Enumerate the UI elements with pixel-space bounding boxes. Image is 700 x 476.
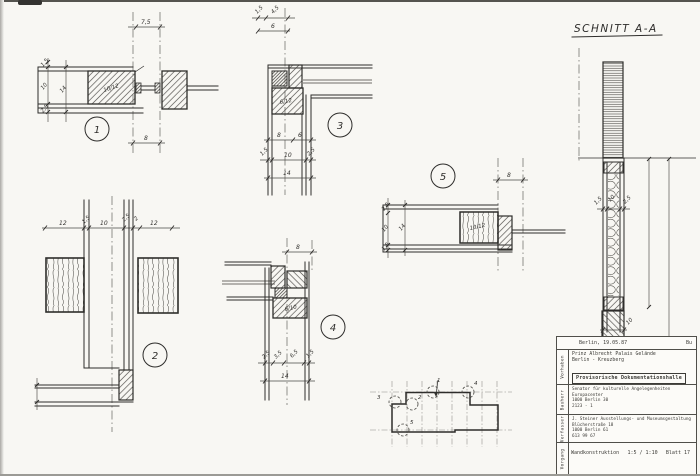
detail-number: 3	[337, 121, 343, 132]
sill-beam	[604, 297, 623, 310]
dim-label: 2,5	[261, 350, 272, 361]
wood-block-right	[138, 258, 178, 313]
dim-label: 6,5	[289, 349, 300, 360]
section-title: SCHNITT A-A	[574, 23, 658, 35]
dim-label: 6	[271, 23, 275, 30]
detail-number: 2	[152, 351, 158, 362]
title-block-client-row: Bauherr Senator für kulturelle Angelegen…	[557, 385, 696, 415]
detail-2: 12 1,5 10 2,5 2 12 2	[35, 196, 180, 432]
row-label: Bauherr	[560, 385, 565, 415]
drawing-date: Berlin, 19.05.87	[579, 340, 627, 346]
drawing-title: Wandkonstruktion	[571, 450, 619, 456]
extension-dim-lines	[649, 159, 669, 336]
row-label-strip: Vorgang	[557, 443, 569, 475]
dim-label: 12	[150, 220, 158, 227]
dim-label: 8	[277, 132, 281, 139]
scan-edge-top	[0, 0, 700, 2]
counter-post	[162, 71, 187, 109]
client-phone: 2123 - 1	[572, 404, 693, 410]
row-label-strip: Bauherr	[557, 385, 569, 414]
board-strip	[271, 266, 285, 288]
detail-number: 4	[330, 323, 336, 334]
marker-label: 5	[410, 420, 414, 426]
sill-block	[119, 370, 133, 400]
bolt-nut-right	[155, 83, 160, 93]
bolt-nut-left	[136, 83, 141, 93]
sheet-number: Blatt 17	[666, 450, 690, 456]
scan-mark	[18, 0, 42, 5]
dim-ticks	[647, 157, 671, 309]
upper-wall-panel	[603, 62, 623, 158]
dim-label: 1,5	[81, 215, 92, 226]
dim-label: 14	[398, 223, 407, 233]
marker-label: 2	[418, 395, 422, 401]
row-label: Vorhaben	[560, 352, 565, 382]
detail-number: 5	[440, 172, 446, 183]
chamfer	[135, 66, 144, 72]
scan-edge-left	[0, 0, 4, 476]
dim-label: 1,5	[254, 5, 265, 16]
project-title: Provisorische Dokumentationshalle	[572, 373, 686, 384]
rail-lines	[222, 281, 275, 284]
dim-label: 14	[283, 170, 291, 177]
dim-label: 2	[133, 215, 140, 222]
dim-label: 2,5	[121, 213, 132, 224]
dim-label: 10	[381, 224, 390, 234]
dim-label: 2,5	[306, 147, 317, 158]
counter-post	[498, 216, 512, 250]
drawing-sheet: 7,5 10/12 1,5 10 2,5 14 8 1	[0, 0, 700, 476]
dim-label: 3,5	[273, 350, 284, 361]
axis-lines	[287, 238, 312, 405]
insulation	[608, 174, 619, 296]
top-wall-lines	[268, 65, 372, 68]
dim-label: 14	[281, 373, 289, 380]
bolt-shaft	[141, 86, 155, 90]
row-label-strip: Verfasser	[557, 415, 569, 442]
title-block-project-row: Vorhaben Prinz Albrecht Palais Gelände B…	[557, 350, 696, 385]
grid-lines	[392, 381, 497, 447]
dim-label: 1,5	[305, 349, 316, 360]
row-label: Vorgang	[560, 444, 565, 474]
dim-label: 8	[144, 135, 148, 142]
dim-label: 8	[296, 244, 300, 251]
marker-label: 1	[437, 378, 441, 384]
marker-label: 3	[377, 395, 381, 401]
detail-1: 7,5 10/12 1,5 10 2,5 14 8 1	[38, 12, 218, 155]
marker-label: 4	[474, 381, 478, 387]
corner-batten	[272, 71, 287, 86]
detail-4: 8 6/10 2,5 3,5 6,5 1,5 14 4	[222, 238, 345, 405]
drawing-scale: 1:5 / 1:10	[627, 450, 657, 456]
base-rail-lines	[35, 385, 133, 406]
title-block-content-row: Vorgang Wandkonstruktion 1:5 / 1:10 Blat…	[557, 443, 696, 475]
rail-lines	[512, 230, 565, 233]
title-underline	[572, 35, 662, 37]
head-beam	[604, 162, 623, 173]
author-name: J. Steiner Ausstellungs- und Museumsgest…	[572, 417, 693, 423]
dim-label: 10	[100, 220, 108, 227]
author-initials: Bu	[686, 340, 692, 346]
dim-label: 14	[59, 85, 68, 95]
row-label-strip: Vorhaben	[557, 350, 569, 384]
rail-lines	[302, 80, 372, 83]
title-block: Berlin, 19.05.87 Bu Vorhaben Prinz Albre…	[556, 336, 697, 475]
section-a-a: SCHNITT A-A 1,5 10 2,5 10	[572, 23, 696, 340]
title-block-header: Berlin, 19.05.87 Bu	[557, 337, 696, 350]
batten	[275, 288, 287, 298]
detail-marker	[406, 398, 418, 410]
author-phone: 613 99 67	[572, 434, 693, 440]
dim-label: 10	[625, 317, 635, 327]
board-strip	[289, 65, 302, 88]
detail-marker	[389, 396, 401, 408]
dim-label: 1,5	[593, 196, 604, 207]
blocking	[287, 271, 307, 288]
dim-label: 8	[507, 172, 511, 179]
detail-number: 1	[94, 125, 100, 136]
dim-label: 12	[59, 220, 67, 227]
wood-block-left	[46, 258, 84, 312]
rail-lines	[187, 86, 218, 90]
row-label: Verfasser	[560, 414, 565, 444]
dim-label: 6	[298, 132, 302, 139]
dim-label: 10	[284, 152, 292, 159]
title-block-author-row: Verfasser J. Steiner Ausstellungs- und M…	[557, 415, 696, 443]
dim-label: 4,5	[270, 5, 281, 16]
key-plan: 1 4 3 2 5	[370, 378, 512, 447]
project-district-line: Berlin - Kreuzberg	[572, 358, 693, 364]
detail-3: 1,5 4,5 6 6/12 8 6 1,5 10 2,5 14 3	[252, 5, 372, 195]
detail-5: 8 10/12 2,5 10 1,5 14 5	[381, 158, 565, 272]
dim-label: 7,5	[141, 19, 151, 26]
